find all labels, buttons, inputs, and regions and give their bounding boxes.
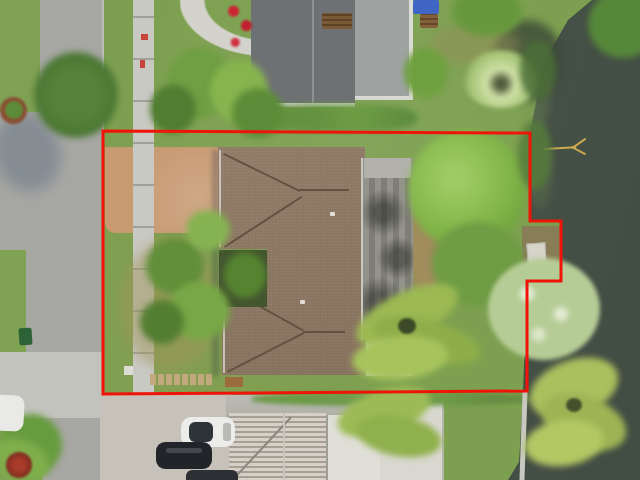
- property-boundary-overlay: [0, 0, 640, 480]
- red-boundary-polygon: [103, 131, 561, 394]
- aerial-photo-scene: [0, 0, 640, 480]
